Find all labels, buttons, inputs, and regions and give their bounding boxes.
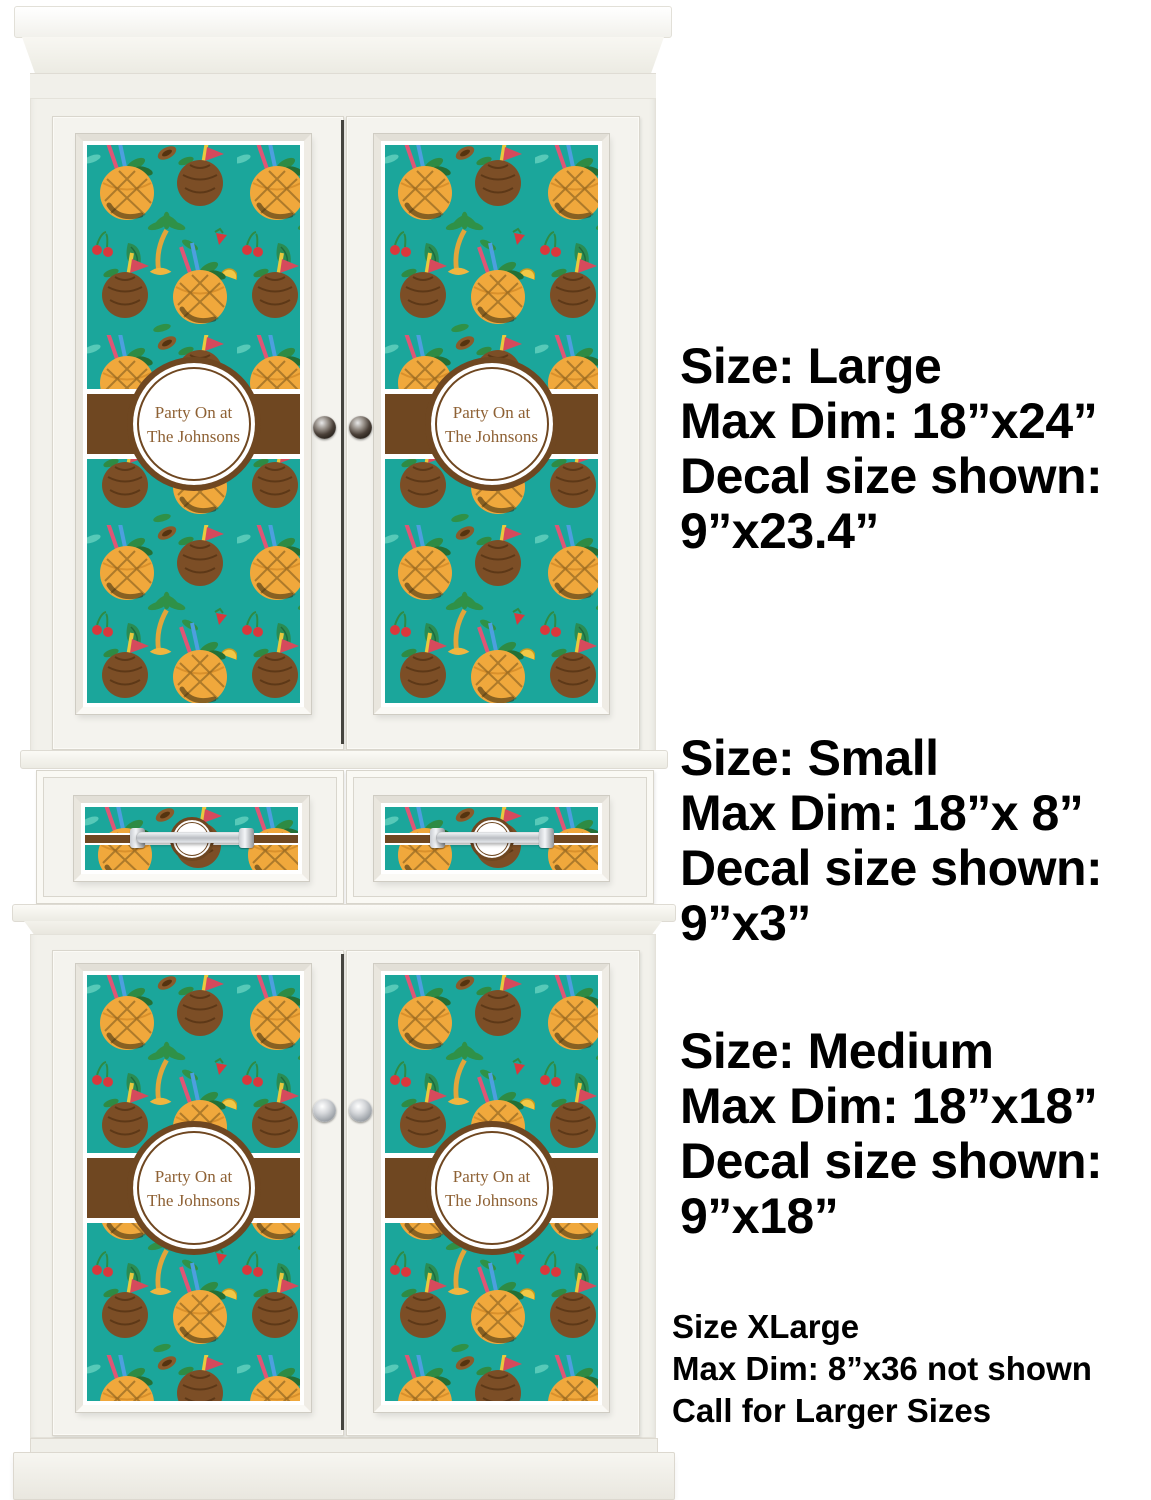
decal-label-circle: Party On at The Johnsons xyxy=(425,1121,559,1255)
annotation-line: Call for Larger Sizes xyxy=(672,1390,1142,1432)
decal-label-line1: Party On at xyxy=(453,402,530,423)
cabinet-crown-cove xyxy=(22,37,664,73)
decal-medium-left: Party On at The Johnsons xyxy=(87,975,300,1401)
decal-label-line2: The Johnsons xyxy=(445,1190,538,1211)
annotation-line: Max Dim: 18”x18” xyxy=(680,1079,1150,1134)
upper-right-door-panel: Party On at The Johnsons xyxy=(374,134,609,714)
size-annotation-medium: Size: Medium Max Dim: 18”x18” Decal size… xyxy=(680,1024,1150,1244)
cabinet-base-plinth xyxy=(13,1452,675,1500)
decal-label-line2: The Johnsons xyxy=(147,426,240,447)
lower-right-door-panel: Party On at The Johnsons xyxy=(374,964,609,1412)
cabinet-crown-base xyxy=(30,73,656,100)
cabinet-molding-step xyxy=(24,921,662,934)
annotation-line: 9”x18” xyxy=(680,1189,1150,1244)
annotation-line: Size XLarge xyxy=(672,1306,1142,1348)
annotation-line: Size: Small xyxy=(680,731,1150,786)
annotation-line: Max Dim: 8”x36 not shown xyxy=(672,1348,1142,1390)
cabinet-rail xyxy=(20,750,668,769)
handle-post xyxy=(539,828,554,848)
annotation-line: 9”x23.4” xyxy=(680,504,1150,559)
decal-label-line1: Party On at xyxy=(453,1166,530,1187)
annotation-line: Decal size shown: xyxy=(680,449,1150,504)
size-annotation-xlarge: Size XLarge Max Dim: 8”x36 not shown Cal… xyxy=(672,1306,1142,1432)
decal-label-line2: The Johnsons xyxy=(445,426,538,447)
handle-post xyxy=(239,828,254,848)
decal-label-line1: Party On at xyxy=(155,402,232,423)
annotation-line: Max Dim: 18”x24” xyxy=(680,394,1150,449)
upper-door-gap xyxy=(341,120,344,744)
annotation-line: Max Dim: 18”x 8” xyxy=(680,786,1150,841)
door-knob xyxy=(313,1099,336,1122)
decal-label-line2: The Johnsons xyxy=(147,1190,240,1211)
size-annotation-small: Size: Small Max Dim: 18”x 8” Decal size … xyxy=(680,731,1150,951)
decal-medium-right: Party On at The Johnsons xyxy=(385,975,598,1401)
decal-label-circle: Party On at The Johnsons xyxy=(127,1121,261,1255)
lower-left-door-panel: Party On at The Johnsons xyxy=(76,964,311,1412)
door-knob xyxy=(313,416,336,439)
drawer-handle xyxy=(130,826,254,852)
annotation-line: 9”x3” xyxy=(680,896,1150,951)
cabinet-crown-top xyxy=(14,6,672,38)
decal-large-left: Party On at The Johnsons xyxy=(87,145,300,703)
annotation-line: Decal size shown: xyxy=(680,841,1150,896)
handle-bar xyxy=(136,832,248,843)
decal-label-circle: Party On at The Johnsons xyxy=(127,357,261,491)
decal-large-right: Party On at The Johnsons xyxy=(385,145,598,703)
product-size-diagram: Party On at The Johnsons xyxy=(0,0,1151,1500)
size-annotation-large: Size: Large Max Dim: 18”x24” Decal size … xyxy=(680,339,1150,559)
annotation-line: Size: Medium xyxy=(680,1024,1150,1079)
decal-label-circle: Party On at The Johnsons xyxy=(425,357,559,491)
handle-bar xyxy=(436,832,548,843)
door-knob xyxy=(349,1099,372,1122)
lower-door-gap xyxy=(341,954,344,1430)
decal-label-line1: Party On at xyxy=(155,1166,232,1187)
door-knob xyxy=(349,416,372,439)
annotation-line: Decal size shown: xyxy=(680,1134,1150,1189)
annotation-line: Size: Large xyxy=(680,339,1150,394)
upper-left-door-panel: Party On at The Johnsons xyxy=(76,134,311,714)
cabinet-molding xyxy=(12,904,676,922)
drawer-handle xyxy=(430,826,554,852)
